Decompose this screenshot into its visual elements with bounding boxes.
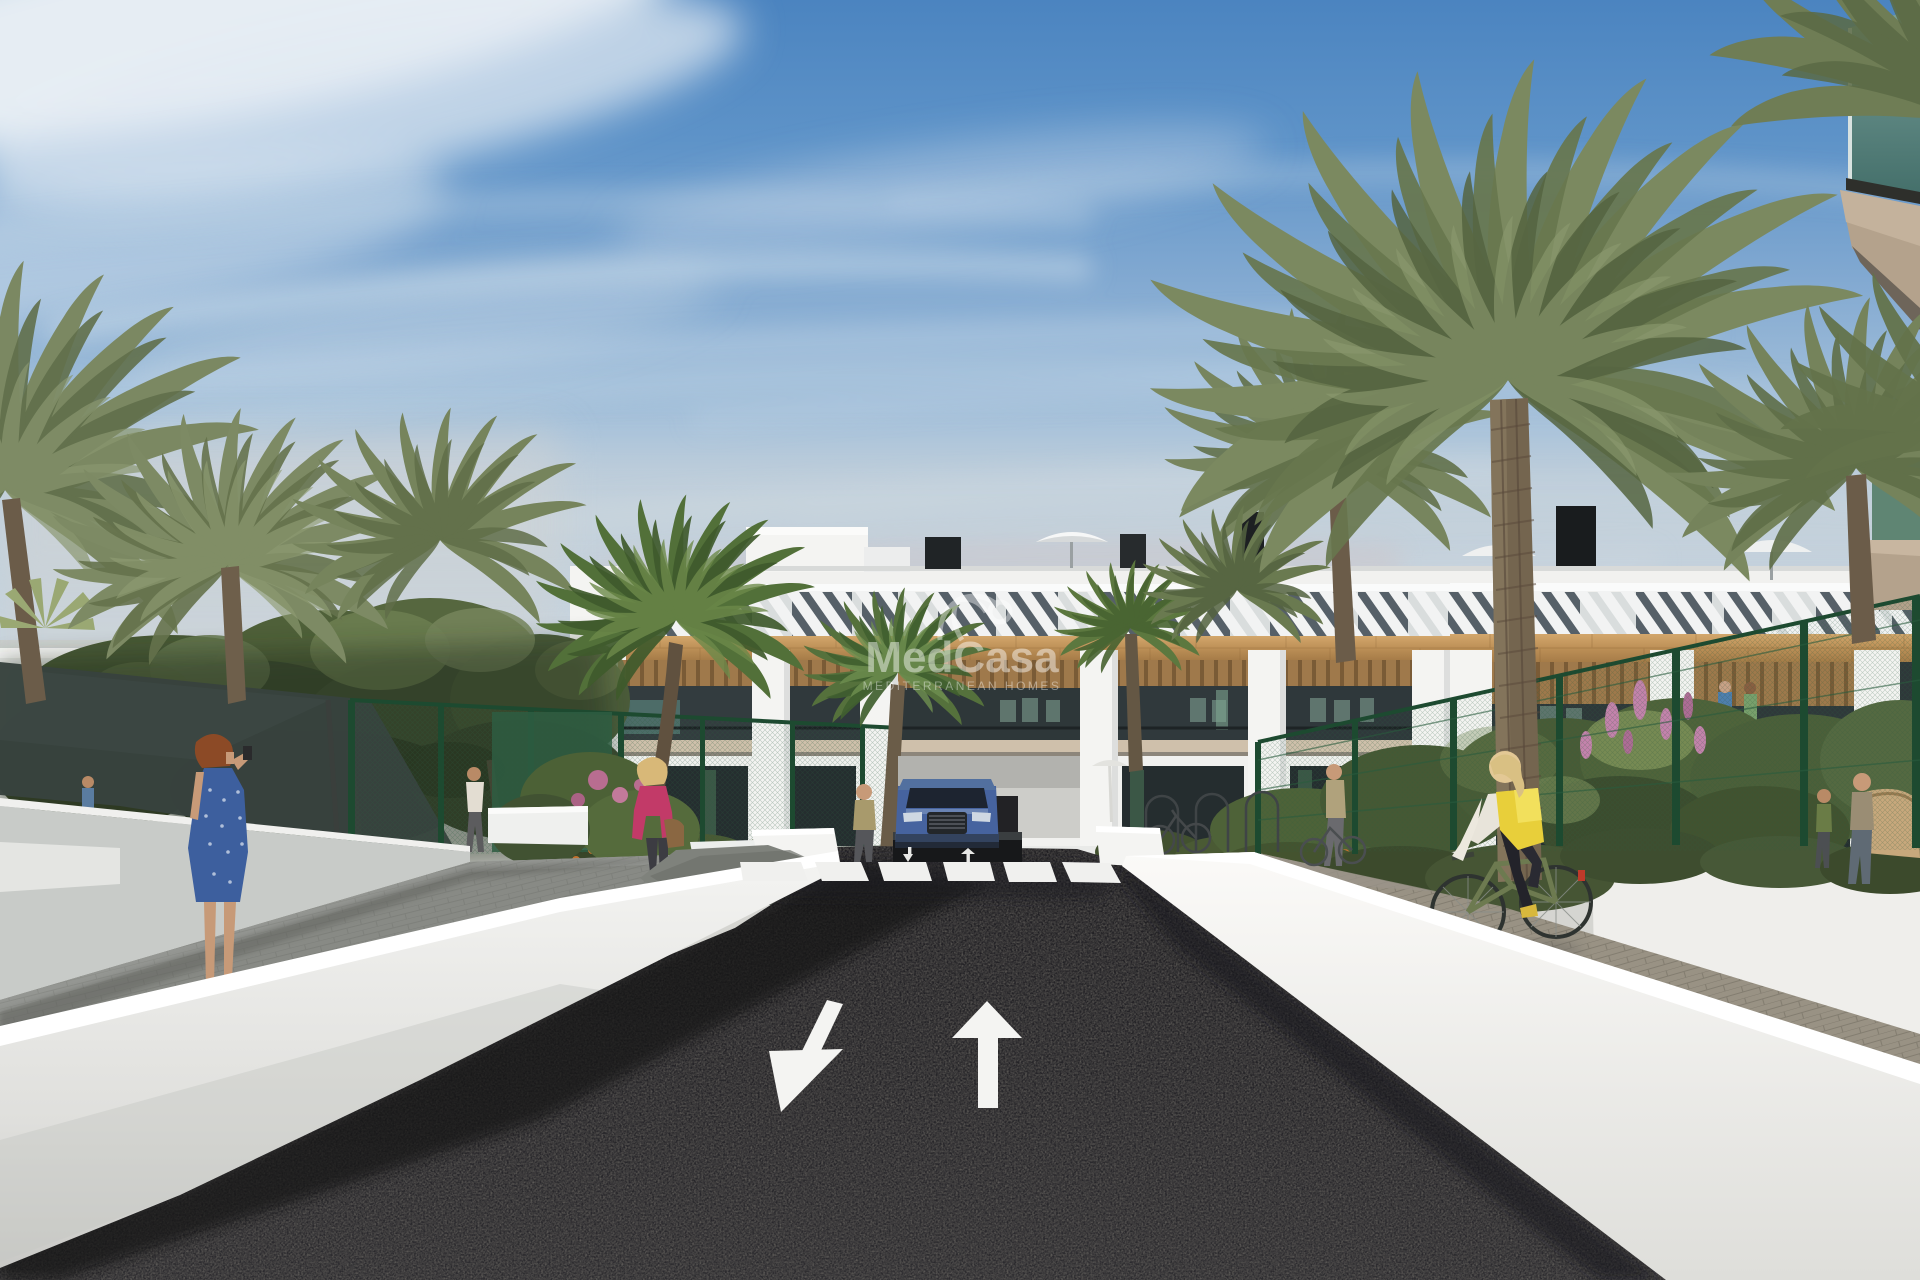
svg-text:MEDITERRANEAN HOMES: MEDITERRANEAN HOMES [863, 679, 1062, 693]
svg-text:MedCasa: MedCasa [865, 633, 1059, 682]
